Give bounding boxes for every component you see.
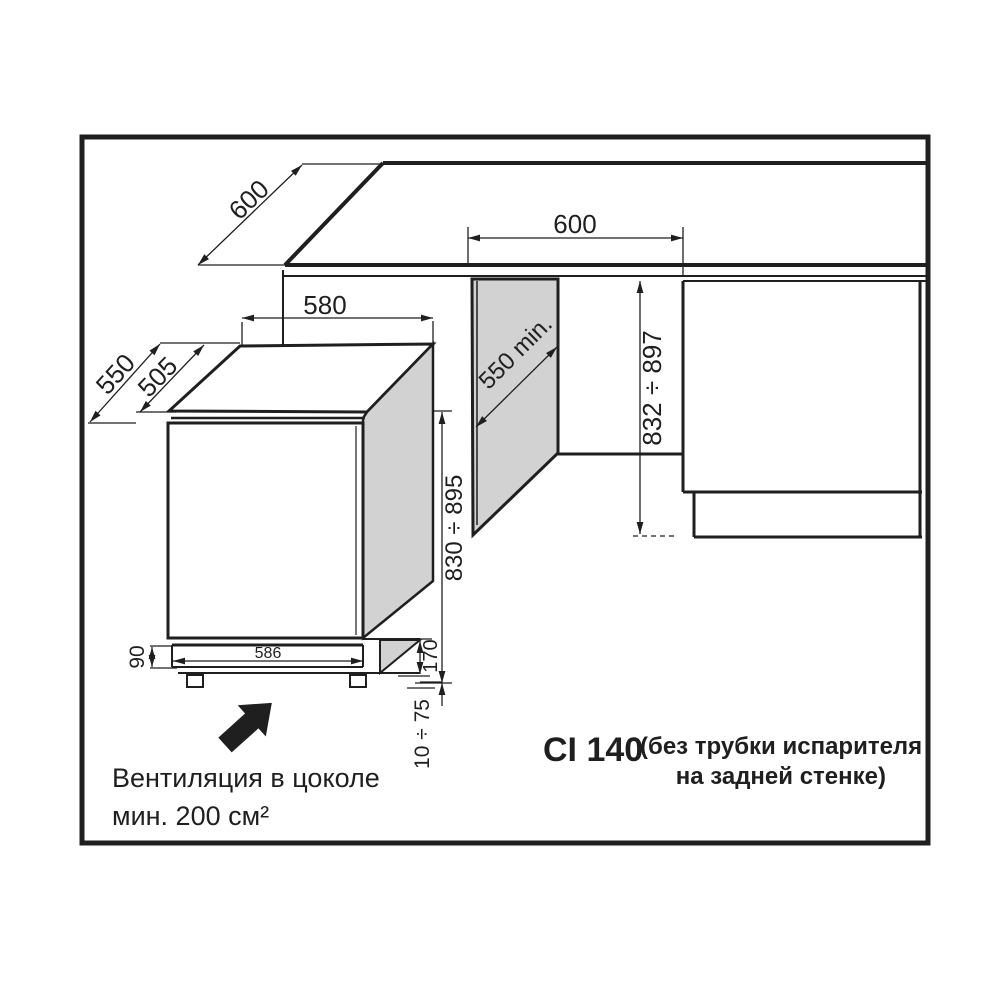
ventilation-arrow-icon (211, 687, 286, 760)
dim-appliance-height-label: 830 ÷ 895 (441, 475, 468, 582)
dim-appliance-width-label: 580 (303, 290, 346, 320)
appliance-box (168, 344, 433, 687)
dim-depth-total-label: 550 (90, 348, 141, 400)
dim-plinth-width-label: 586 (255, 645, 282, 662)
appliance-foot-right (350, 675, 366, 687)
appliance-plinth-side (380, 640, 420, 673)
installation-diagram-page: 600 600 580 550 505 550 min. 832 ÷ 897 8… (0, 0, 1000, 1000)
dim-plinth-recess-label: 170 (420, 639, 442, 672)
model-note-line1: (без трубки испарителя (640, 733, 922, 760)
appliance-door (168, 423, 363, 638)
dim-plinth-height-label: 90 (126, 645, 149, 668)
dim-feet-range-label: 10 ÷ 75 (411, 699, 434, 769)
dim-niche-width-label: 600 (553, 209, 596, 239)
dim-counter-depth-label: 600 (223, 174, 275, 226)
ventilation-note-line2: мин. 200 см² (112, 801, 269, 831)
appliance-foot-left (187, 675, 203, 687)
model-note-line2: на задней стенке) (676, 763, 886, 790)
right-cabinet (683, 281, 922, 537)
ventilation-note-line1: Вентиляция в цоколе (112, 763, 380, 793)
model-name: CI 140 (543, 731, 643, 769)
dim-depth-body-label: 505 (132, 351, 184, 403)
installation-diagram: 600 600 580 550 505 550 min. 832 ÷ 897 8… (0, 0, 1000, 1000)
dim-niche-height-label: 832 ÷ 897 (637, 330, 667, 445)
